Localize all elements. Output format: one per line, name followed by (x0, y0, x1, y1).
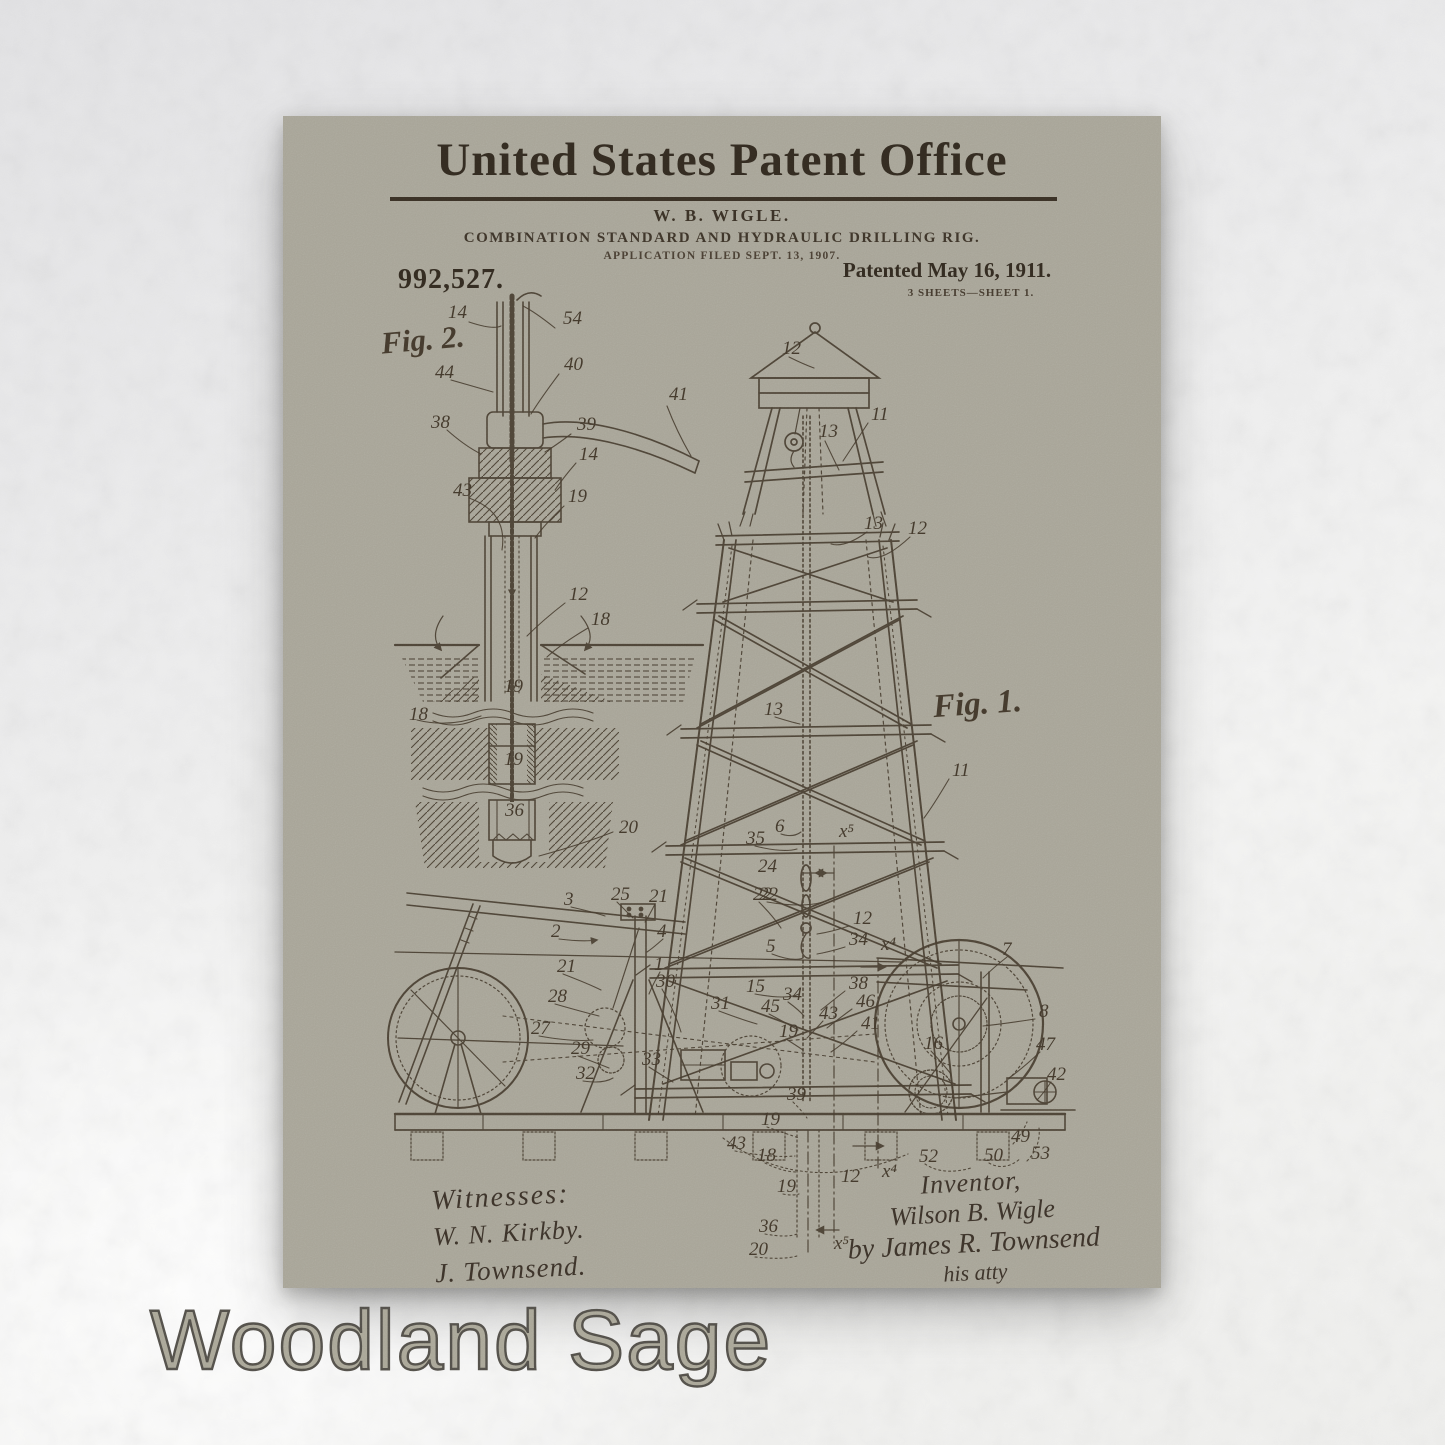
ref-numeral: 19 (761, 1109, 781, 1130)
witnesses-block: Witnesses: W. N. Kirkby. J. Townsend. (430, 1166, 755, 1293)
ref-numeral: 52 (919, 1146, 939, 1167)
ref-numeral: 12 (908, 518, 928, 539)
patent-drawing: 1454444038394114431912181918193620121311… (283, 116, 1161, 1288)
ref-numeral: 29 (571, 1038, 591, 1059)
ref-numeral: 19 (568, 486, 588, 507)
ref-numeral: 46 (856, 991, 876, 1012)
ref-numeral: 6 (775, 816, 785, 837)
ref-numeral: 34 (782, 984, 803, 1005)
ref-numeral: 53 (1031, 1143, 1050, 1164)
ref-numeral: 22 (753, 884, 773, 905)
ref-numeral: 49 (1011, 1126, 1031, 1147)
ref-numeral: 21 (649, 886, 668, 907)
ref-numeral: 19 (504, 676, 524, 697)
ref-numeral: 19 (777, 1176, 797, 1197)
ref-numeral: 41 (669, 384, 688, 405)
ref-numeral: 18 (409, 704, 429, 725)
ref-numeral: 19 (779, 1021, 799, 1042)
ref-numeral: 44 (435, 362, 455, 383)
figure1-label: Fig. 1. (932, 683, 1023, 726)
ref-numeral: 32 (575, 1063, 596, 1084)
ref-numeral: 4 (657, 921, 667, 942)
ref-numeral: 43 (453, 480, 472, 501)
ref-numeral: 45 (761, 996, 780, 1017)
ref-numeral: 40 (564, 354, 584, 375)
ref-numeral: 12 (782, 338, 802, 359)
ref-numeral: 12 (569, 584, 589, 605)
ref-numeral: 11 (871, 404, 889, 425)
ref-numeral: 39 (576, 414, 597, 435)
ref-numeral: 43 (727, 1133, 746, 1154)
ref-numeral: 16 (924, 1033, 944, 1054)
ref-numeral: 27 (531, 1018, 552, 1039)
ref-numeral: 24 (758, 856, 778, 877)
ref-numeral: 43 (819, 1003, 838, 1024)
ref-numeral: 21 (557, 956, 576, 977)
ref-numeral: 20 (619, 817, 639, 838)
ref-numeral: 13 (819, 421, 838, 442)
ref-numeral: 39 (786, 1084, 807, 1105)
ref-numeral: 31 (710, 993, 730, 1014)
figure2-label: Fig. 2. (380, 318, 466, 361)
ref-numeral: 15 (746, 976, 765, 997)
ref-numeral: 18 (591, 609, 611, 630)
ref-numeral: x⁴ (880, 934, 896, 955)
ref-numeral: x⁵ (838, 821, 854, 842)
ref-numeral: 54 (563, 308, 583, 329)
ref-numeral: 18 (757, 1145, 777, 1166)
patent-print: United States Patent Office W. B. WIGLE.… (283, 116, 1161, 1288)
color-swatch-label: Woodland Sage (150, 1292, 772, 1389)
ref-numeral: 35 (745, 828, 765, 849)
ref-numeral: 8 (1039, 1001, 1049, 1022)
fig1-derrick (621, 323, 985, 1243)
ref-numeral: 25 (611, 884, 630, 905)
ref-numeral: 14 (579, 444, 599, 465)
ref-numeral: 36 (504, 800, 525, 821)
ref-numeral: 13 (864, 513, 883, 534)
inventor-block: Inventor, Wilson B. Wigle by James R. To… (840, 1161, 1106, 1292)
ref-numeral: 28 (548, 986, 568, 1007)
ref-numeral: 19 (504, 749, 524, 770)
ref-numeral: 30 (655, 971, 676, 992)
ref-numeral: 2 (551, 921, 561, 942)
ref-numeral: 47 (1036, 1034, 1057, 1055)
ref-numeral: 13 (764, 699, 783, 720)
ref-numeral: 42 (1047, 1064, 1067, 1085)
ref-numeral: 7 (1002, 939, 1013, 960)
ref-numeral: 38 (430, 412, 451, 433)
ref-numeral: 33 (641, 1049, 661, 1070)
reference-numerals: 1454444038394114431912181918193620121311… (409, 302, 1067, 1260)
ref-numeral: 50 (984, 1145, 1004, 1166)
ref-numeral: 36 (758, 1216, 779, 1237)
ref-numeral: 34 (848, 929, 869, 950)
ref-numeral: 3 (563, 889, 574, 910)
ref-numeral: 11 (952, 760, 970, 781)
ref-numeral: 5 (766, 936, 776, 957)
ref-numeral: 12 (853, 908, 873, 929)
ref-numeral: 41 (861, 1013, 880, 1034)
